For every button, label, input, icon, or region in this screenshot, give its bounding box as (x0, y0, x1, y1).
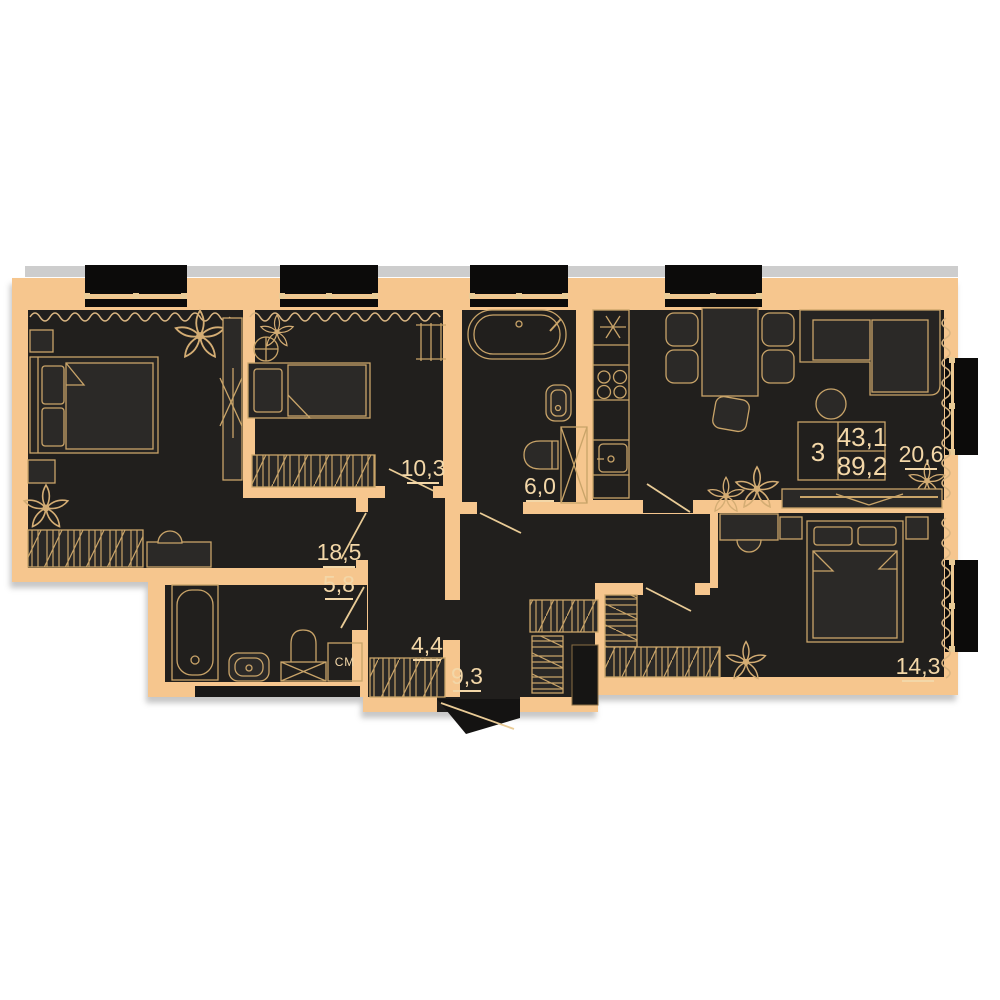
sink (524, 441, 558, 469)
floor-plan: СМ 18,5 (0, 0, 1000, 1000)
wardrobe (532, 636, 563, 693)
door-opening-kitchen (643, 500, 693, 513)
double-bed (30, 357, 158, 453)
nightstand (906, 517, 928, 539)
area-living: 18,5 (317, 539, 362, 565)
single-bed (248, 363, 370, 418)
area-bathroom-main: 6,0 (524, 473, 556, 499)
sink (229, 653, 269, 681)
living-area-value: 43,1 (837, 422, 888, 452)
nightstand (28, 460, 55, 483)
double-bed (807, 521, 903, 642)
desk (147, 542, 211, 567)
area-kitchen-living: 20,6 (899, 441, 944, 467)
area-bedroom2: 10,3 (401, 455, 446, 481)
entrance-door (437, 699, 520, 734)
area-bedroom3: 14,3 (896, 653, 941, 679)
rooms-count: 3 (811, 437, 825, 467)
floor-plan-drawing: СМ 18,5 (0, 0, 1000, 1000)
shelf-ladder (416, 323, 446, 361)
coffee-table (816, 389, 846, 419)
tv-stand (782, 489, 942, 508)
chair (666, 350, 698, 383)
area-hallway: 9,3 (451, 663, 483, 689)
window-1 (84, 265, 187, 307)
chair (711, 395, 750, 432)
wall-inner-gap (195, 686, 360, 697)
hall-mid-floor (460, 514, 710, 583)
wardrobe (530, 600, 598, 632)
wardrobe (370, 658, 445, 697)
wardrobe (252, 455, 375, 487)
nightstand (30, 330, 53, 352)
chair (666, 313, 698, 346)
corridor-connector-floor (443, 600, 460, 640)
window-2 (279, 265, 378, 307)
wardrobe (28, 530, 143, 567)
ceiling-lamp-icon (254, 337, 278, 361)
washing-machine-label: СМ (335, 655, 356, 669)
toilet (546, 385, 571, 421)
wardrobe (605, 647, 720, 677)
chair (762, 350, 794, 383)
wardrobe-mirror (220, 318, 242, 480)
chair (762, 313, 794, 346)
nightstand (780, 517, 802, 539)
corridor-floor (368, 498, 445, 600)
area-closet: 4,4 (411, 632, 443, 658)
shaft (572, 645, 598, 705)
wardrobe (605, 595, 637, 647)
total-area-value: 89,2 (837, 451, 888, 481)
area-bathroom-small: 5,8 (323, 571, 355, 597)
vestibule-pass-floor (710, 588, 718, 598)
window-3 (469, 265, 568, 307)
door-opening-bedroom3 (643, 583, 695, 595)
door-opening-bathroom-main (477, 502, 523, 514)
window-4 (664, 265, 762, 307)
desk (720, 514, 778, 540)
